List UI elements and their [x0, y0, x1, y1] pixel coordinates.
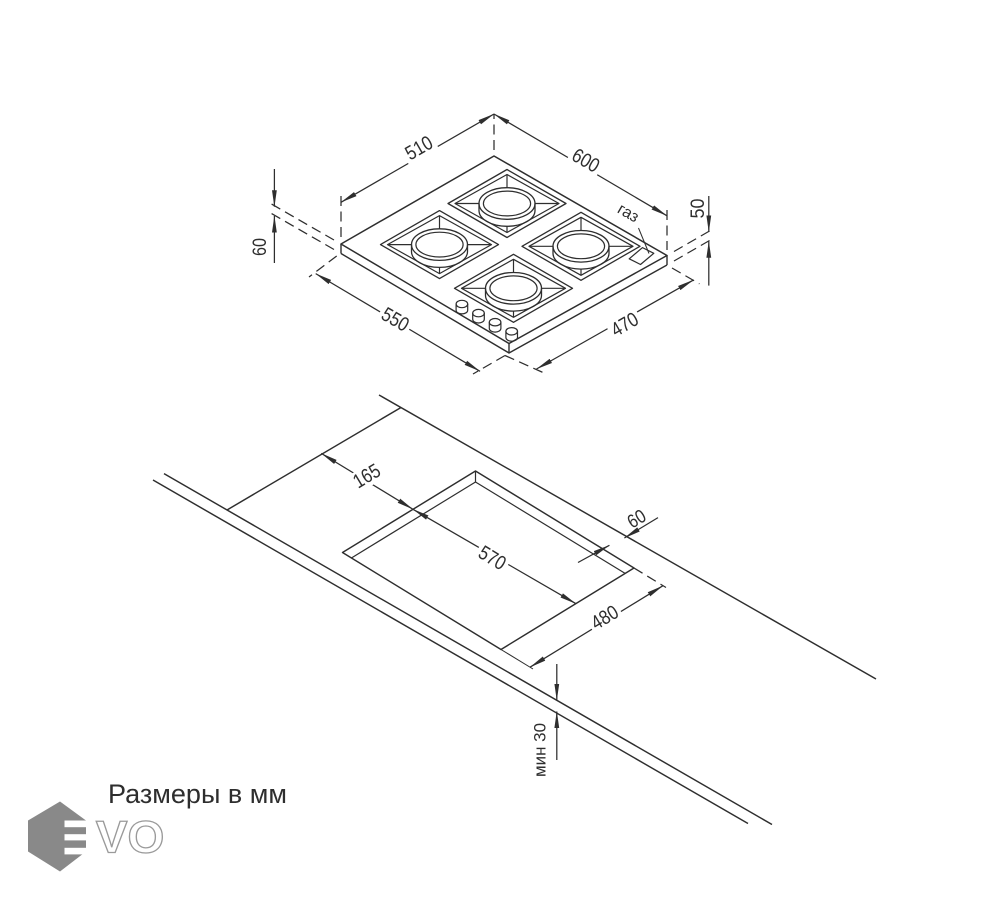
- svg-text:50: 50: [688, 199, 709, 219]
- svg-text:мин 30: мин 30: [531, 723, 550, 777]
- svg-text:VO: VO: [96, 812, 164, 863]
- svg-text:60: 60: [250, 238, 271, 256]
- svg-text:Размеры в мм: Размеры в мм: [108, 779, 287, 809]
